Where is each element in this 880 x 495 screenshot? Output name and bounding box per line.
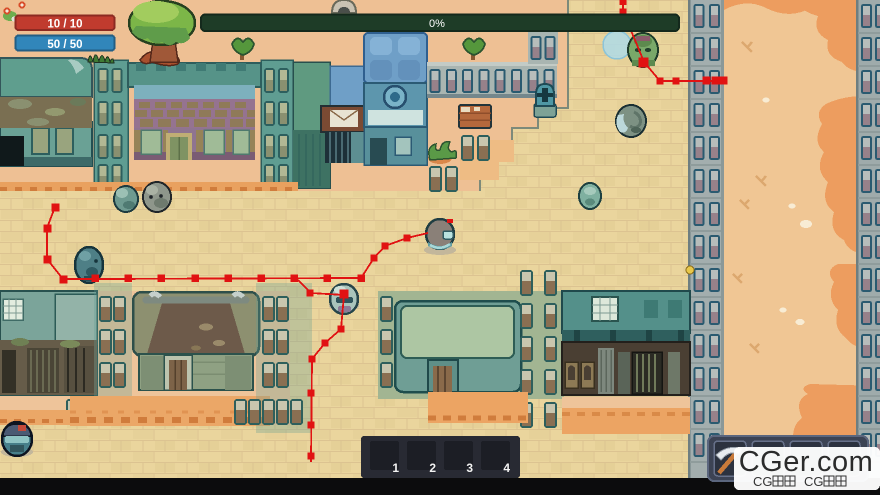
svg-text:4: 4 — [503, 461, 510, 475]
svg-text:CG: CG — [753, 474, 773, 489]
svg-text:3: 3 — [466, 461, 473, 475]
svg-text:0%: 0% — [429, 18, 445, 30]
svg-text:CG: CG — [804, 474, 824, 489]
svg-text:50 / 50: 50 / 50 — [47, 39, 82, 51]
svg-text:10 / 10: 10 / 10 — [47, 19, 82, 31]
svg-text:2: 2 — [429, 461, 436, 475]
svg-text:1: 1 — [392, 461, 399, 475]
